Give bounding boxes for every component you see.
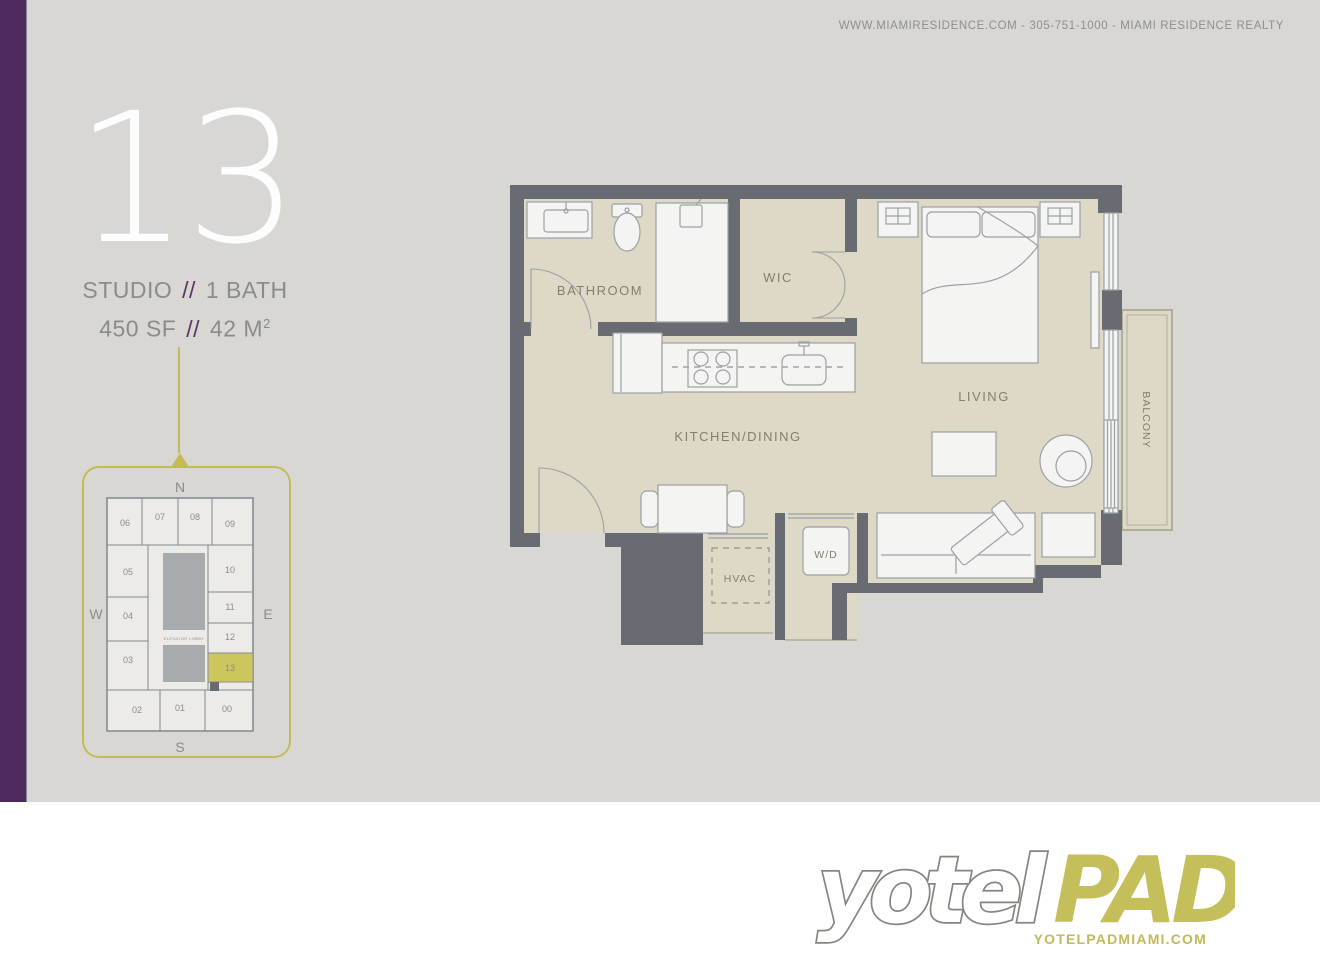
keyplan-unit-01: 01	[175, 703, 185, 713]
living-label: LIVING	[958, 389, 1010, 404]
side-table	[1042, 513, 1095, 557]
dining-table	[658, 485, 727, 533]
keyplan-unit-06: 06	[120, 518, 130, 528]
compass-east: E	[263, 606, 272, 622]
purple-accent-bar	[0, 0, 27, 802]
keyplan-unit-00: 00	[222, 704, 232, 714]
keyplan-unit-13-notch	[210, 682, 219, 691]
unit-area-line: 450 SF // 42 M2	[60, 307, 310, 346]
keyplan: N S W E ELEVATOR LOBBY 06070809050403101…	[80, 450, 295, 765]
keyplan-unit-05: 05	[123, 567, 133, 577]
unit-specs: STUDIO // 1 BATH 450 SF // 42 M2	[60, 273, 310, 346]
pillow-right	[982, 212, 1035, 237]
slash-separator: //	[179, 277, 199, 303]
pillow-left	[927, 212, 980, 237]
keyplan-unit-07: 07	[155, 512, 165, 522]
unit-area-sf: 450 SF	[99, 316, 176, 342]
keyplan-unit-04: 04	[123, 611, 133, 621]
sliding-door-leaf	[1091, 272, 1099, 348]
kitchen-dining-label: KITCHEN/DINING	[674, 429, 801, 444]
slash-separator: //	[183, 316, 203, 342]
compass-north: N	[175, 479, 185, 495]
balcony-label: BALCONY	[1140, 391, 1152, 448]
keyplan-unit-11: 11	[225, 602, 234, 612]
floorplan: BALCONY	[500, 178, 1180, 668]
logo-text-pad: PAD	[1053, 850, 1235, 944]
keyplan-unit-08: 08	[190, 512, 200, 522]
bathroom-label: BATHROOM	[557, 283, 643, 298]
shower	[656, 203, 728, 322]
unit-baths: 1 BATH	[206, 277, 288, 303]
keyplan-elevator-lobby-label: ELEVATOR LOBBY	[164, 636, 205, 641]
toilet-bowl	[614, 213, 640, 251]
keyplan-unit-12: 12	[225, 632, 235, 642]
metric-exponent: 2	[263, 316, 271, 331]
keyplan-unit-10: 10	[225, 565, 235, 575]
keyplan-unit-13: 13	[225, 663, 235, 673]
header-contact: WWW.MIAMIRESIDENCE.COM - 305-751-1000 - …	[839, 20, 1284, 32]
website-url: YOTELPADMIAMI.COM	[1034, 931, 1207, 947]
unit-type-line: STUDIO // 1 BATH	[60, 273, 310, 307]
hvac-label: HVAC	[724, 573, 756, 585]
compass-west: W	[89, 606, 103, 622]
keyplan-unit-03: 03	[123, 655, 133, 665]
unit-area-metric: 42 M	[210, 316, 263, 342]
wd-label: W/D	[814, 549, 837, 561]
logo-text-yotel: yotel	[817, 850, 1048, 944]
armchair	[1040, 435, 1092, 487]
refrigerator	[613, 333, 662, 393]
wic-label: WIC	[763, 270, 793, 285]
dining-chair-right	[727, 491, 744, 527]
dining-chair-left	[641, 491, 658, 527]
bedroom-window	[1104, 213, 1118, 290]
keyplan-unit-09: 09	[225, 519, 235, 529]
balcony: BALCONY	[1122, 310, 1172, 530]
floorplan-sheet: WWW.MIAMIRESIDENCE.COM - 305-751-1000 - …	[0, 0, 1320, 958]
keyplan-elevator-core-lower	[163, 645, 205, 682]
unit-type: STUDIO	[82, 277, 172, 303]
vanity	[527, 202, 592, 238]
coffee-table	[932, 432, 996, 476]
keyplan-arrow	[171, 453, 189, 467]
unit-number: 13	[60, 95, 310, 265]
compass-south: S	[175, 739, 184, 755]
dining-furniture	[641, 485, 744, 533]
keyplan-unit-02: 02	[132, 705, 142, 715]
unit-info-block: 13 STUDIO // 1 BATH 450 SF // 42 M2	[60, 95, 310, 346]
keyplan-connector-line	[178, 347, 180, 453]
keyplan-elevator-core-upper	[163, 553, 205, 630]
